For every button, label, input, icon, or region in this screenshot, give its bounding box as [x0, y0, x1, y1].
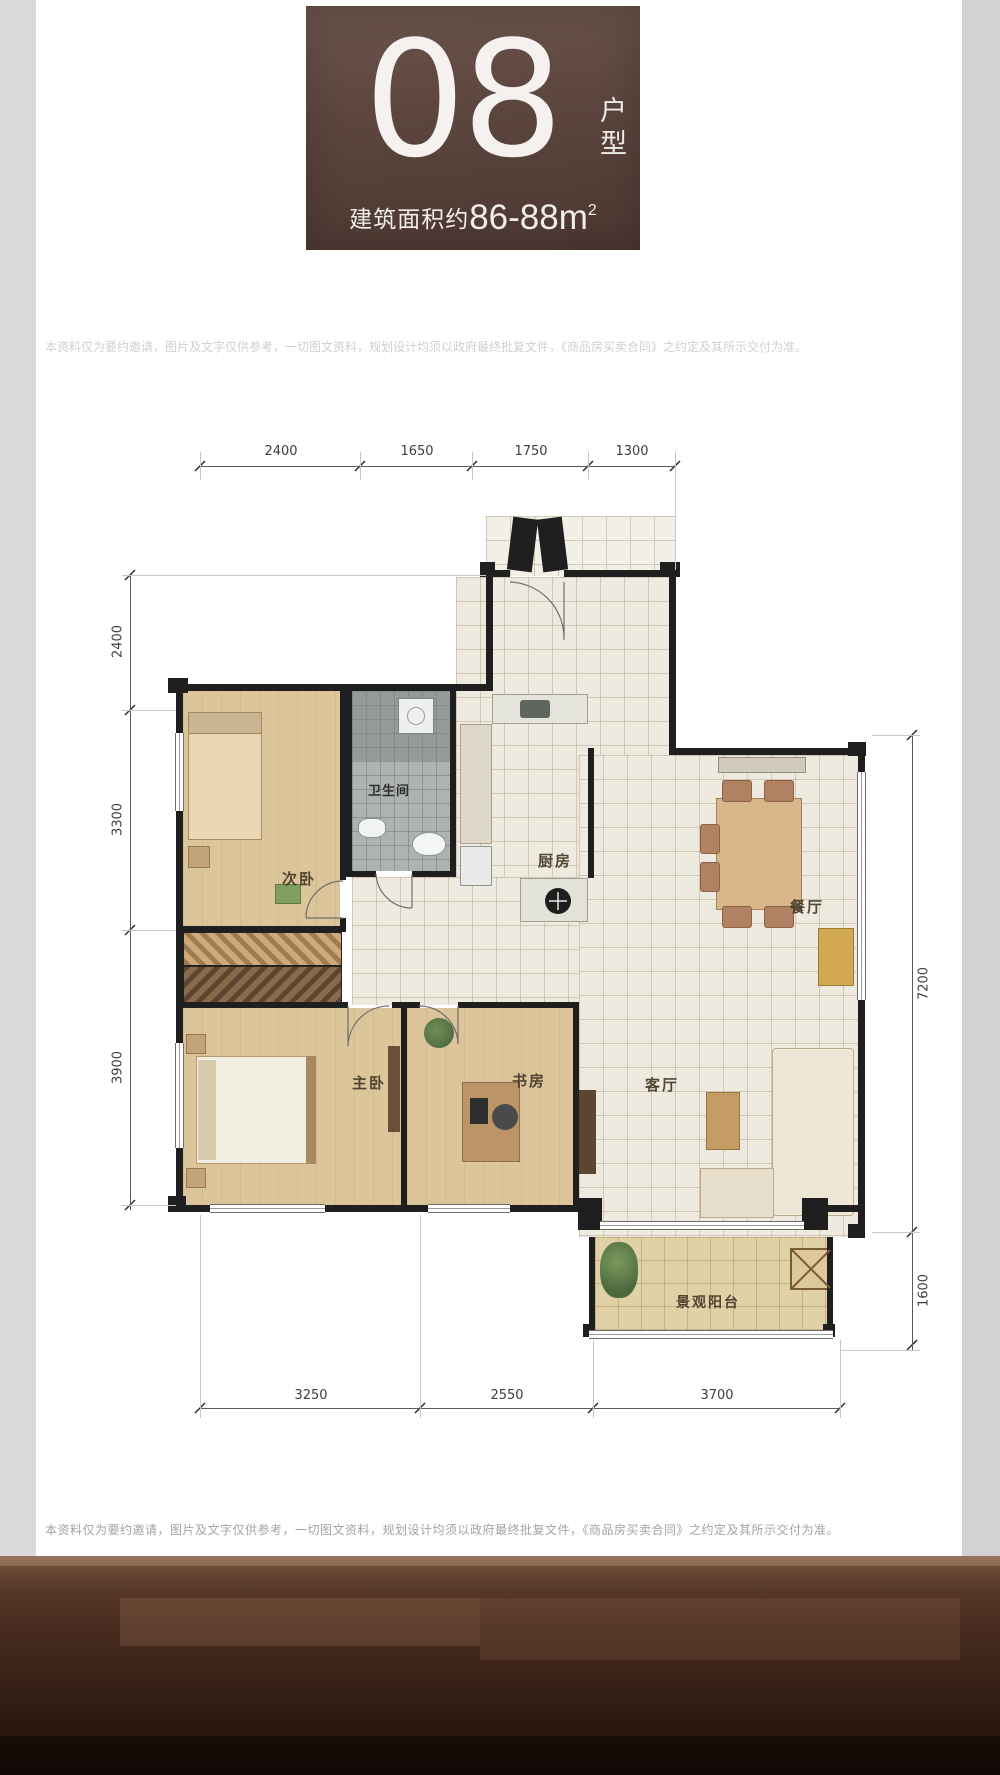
dim-label-bottom-2: 2550 [481, 1388, 533, 1403]
room-label-kitchen: 厨房 [538, 850, 572, 871]
room-label-living: 客厅 [645, 1074, 679, 1095]
dim-label-top-2: 1650 [391, 444, 443, 459]
footer-wood-band [0, 1556, 1000, 1775]
plan-annotations [0, 0, 1000, 1775]
dimension-ticks [125, 461, 917, 1413]
dim-label-left-1: 2400 [111, 616, 126, 668]
dim-line-left [130, 575, 131, 1210]
dim-line-right [912, 735, 913, 1350]
floorplan-flyer-page: 08 户型 建筑面积约86-88m2 本资料仅为要约邀请，图片及文字仅供参考，一… [0, 0, 1000, 1775]
dim-label-top-4: 1300 [606, 444, 658, 459]
extension-line [872, 1232, 920, 1233]
room-label-master-bedroom: 主卧 [352, 1072, 386, 1093]
dim-label-right-2: 1600 [917, 1265, 932, 1317]
master-door-arc [348, 1006, 389, 1046]
room-label-secondary-bedroom: 次卧 [282, 868, 316, 889]
extension-line [122, 930, 176, 931]
dim-label-top-3: 1750 [505, 444, 557, 459]
extension-line [675, 452, 676, 570]
footer-shadow-bottom [0, 1736, 1000, 1775]
extension-line [200, 1215, 201, 1418]
room-label-balcony: 景观阳台 [676, 1292, 740, 1312]
dim-label-left-2: 3300 [111, 794, 126, 846]
floor-drain-x [792, 1250, 830, 1288]
footer-mid-block-right [480, 1598, 960, 1660]
extension-line [840, 1350, 920, 1351]
extension-line [122, 710, 176, 711]
dim-label-right-1: 7200 [917, 958, 932, 1010]
dim-line-bottom [200, 1408, 841, 1409]
dim-line-top [200, 466, 676, 467]
extension-line [122, 575, 486, 576]
study-door-arc [419, 1006, 458, 1044]
dim-label-bottom-1: 3250 [285, 1388, 337, 1403]
dim-label-top-1: 2400 [255, 444, 307, 459]
entry-door-arc [510, 582, 564, 640]
extension-line [360, 452, 361, 480]
room-label-study: 书房 [512, 1070, 546, 1091]
room-label-dining: 餐厅 [790, 896, 824, 917]
extension-line [122, 1205, 176, 1206]
extension-line [840, 1340, 841, 1418]
extension-line [588, 452, 589, 480]
footer-mid-block-left [120, 1598, 480, 1646]
footer-highlight-strip [0, 1556, 1000, 1566]
extension-line [200, 452, 201, 480]
disclaimer-text: 本资料仅为要约邀请，图片及文字仅供参考，一切图文资料，规划设计均须以政府最终批复… [45, 1521, 839, 1538]
room-label-bathroom: 卫生间 [368, 780, 410, 799]
dim-label-bottom-3: 3700 [691, 1388, 743, 1403]
extension-line [593, 1340, 594, 1418]
bathroom-door-arc [376, 874, 412, 908]
extension-line [872, 735, 920, 736]
stove-burner-cross [549, 892, 567, 910]
extension-line [420, 1215, 421, 1418]
door-arcs [306, 582, 564, 1046]
extension-line [472, 452, 473, 480]
dim-label-left-3: 3900 [111, 1042, 126, 1094]
